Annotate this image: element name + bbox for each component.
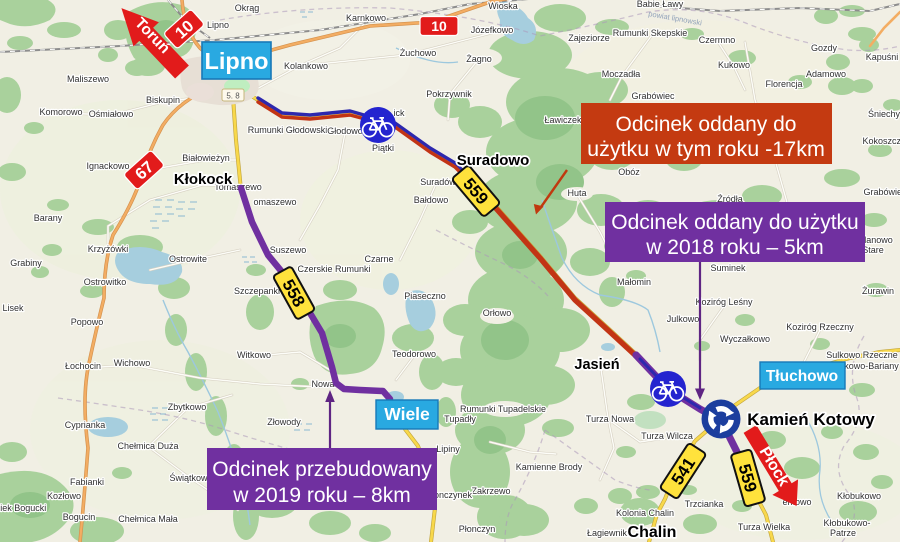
svg-text:w 2019 roku – 8km: w 2019 roku – 8km [232, 484, 410, 507]
svg-text:Łagiewniki: Łagiewniki [587, 528, 629, 538]
svg-text:Teodorowo: Teodorowo [392, 349, 436, 359]
svg-text:Kłokock: Kłokock [174, 171, 233, 188]
svg-text:Krzyżówki: Krzyżówki [88, 244, 129, 254]
svg-text:Chalin: Chalin [628, 524, 677, 541]
svg-text:Ośmiałowo: Ośmiałowo [89, 109, 134, 119]
svg-text:10: 10 [431, 18, 447, 34]
svg-text:Lipiny: Lipiny [436, 444, 460, 454]
svg-text:Suradów: Suradów [420, 177, 456, 187]
svg-text:Płonczyn: Płonczyn [459, 524, 496, 534]
svg-text:Ostrowitko: Ostrowitko [84, 277, 127, 287]
svg-text:Kozłowo: Kozłowo [47, 491, 81, 501]
svg-text:Szczepanki: Szczepanki [234, 286, 280, 296]
svg-text:Odcinek oddany do: Odcinek oddany do [616, 113, 797, 136]
svg-text:Józefkowo: Józefkowo [471, 25, 514, 35]
svg-text:użytku w tym roku -17km: użytku w tym roku -17km [587, 137, 825, 161]
svg-text:Jasień: Jasień [574, 357, 619, 373]
svg-text:Czarne: Czarne [364, 254, 393, 264]
svg-text:Kamień Kotowy: Kamień Kotowy [747, 410, 875, 429]
svg-text:Orłowo: Orłowo [483, 308, 512, 318]
svg-text:Bogucin: Bogucin [63, 512, 96, 522]
svg-text:Huta: Huta [567, 188, 586, 198]
svg-text:Piątki: Piątki [372, 143, 394, 153]
svg-text:Grabówiec: Grabówiec [631, 91, 675, 101]
svg-text:Kukowo: Kukowo [718, 60, 750, 70]
svg-text:Komorowo: Komorowo [39, 107, 82, 117]
svg-text:Chełmica Duża: Chełmica Duża [117, 441, 178, 451]
svg-text:Sulkowo Rzeczne: Sulkowo Rzeczne [826, 350, 898, 360]
svg-text:Złowody: Złowody [267, 417, 301, 427]
svg-text:Zbytkowo: Zbytkowo [168, 402, 207, 412]
svg-text:Obóz: Obóz [618, 167, 640, 177]
svg-text:Grabówiec: Grabówiec [863, 187, 900, 197]
svg-text:Biskupin: Biskupin [146, 95, 180, 105]
svg-text:Kapuśni: Kapuśni [866, 52, 899, 62]
svg-text:Żurawin: Żurawin [862, 286, 894, 296]
svg-text:ick: ick [394, 108, 405, 118]
svg-text:Rumunki Skepskie: Rumunki Skepskie [613, 28, 688, 38]
svg-text:Lisek: Lisek [2, 303, 24, 313]
svg-text:Czerskie Rumunki: Czerskie Rumunki [297, 264, 370, 274]
svg-text:Moczadła: Moczadła [602, 69, 641, 79]
svg-text:Białowieżyn: Białowieżyn [182, 153, 230, 163]
svg-text:Kolankowo: Kolankowo [284, 61, 328, 71]
svg-text:w 2018 roku – 5km: w 2018 roku – 5km [645, 236, 823, 259]
svg-text:Grabiny: Grabiny [10, 258, 42, 268]
svg-text:onczynek: onczynek [434, 490, 473, 500]
svg-text:Odcinek przebudowany: Odcinek przebudowany [212, 458, 432, 481]
svg-text:Witkowo: Witkowo [237, 350, 271, 360]
svg-text:Śniechy: Śniechy [868, 108, 900, 119]
svg-text:Julkowo: Julkowo [667, 314, 700, 324]
svg-text:Babie Ławy: Babie Ławy [637, 0, 684, 9]
svg-text:ulkowo-Bariany: ulkowo-Bariany [837, 361, 899, 371]
svg-text:Turza Nowa: Turza Nowa [586, 414, 634, 424]
svg-text:Stare: Stare [862, 245, 884, 255]
svg-text:Łochocin: Łochocin [65, 361, 101, 371]
svg-text:Patrze: Patrze [830, 528, 856, 538]
svg-text:Kłobukowo-: Kłobukowo- [823, 518, 870, 528]
svg-text:Czermno: Czermno [699, 35, 736, 45]
svg-text:Okrąg: Okrąg [235, 3, 260, 13]
svg-text:Fabianki: Fabianki [70, 477, 104, 487]
svg-text:Nowa: Nowa [311, 379, 334, 389]
svg-text:Ławiczek: Ławiczek [544, 115, 582, 125]
svg-text:Adamowo: Adamowo [806, 69, 846, 79]
svg-text:Głodowo: Głodowo [327, 126, 363, 136]
svg-text:Kłobukowo: Kłobukowo [837, 491, 881, 501]
svg-text:Florencja: Florencja [765, 79, 802, 89]
svg-text:Kolonia Chalin: Kolonia Chalin [616, 508, 674, 518]
svg-text:Koziróg Leśny: Koziróg Leśny [695, 297, 753, 307]
svg-text:Kokoszczy: Kokoszczy [862, 136, 900, 146]
svg-text:Koziróg Rzeczny: Koziróg Rzeczny [786, 322, 854, 332]
svg-text:Wichowo: Wichowo [114, 358, 151, 368]
svg-text:Turza Wilcza: Turza Wilcza [641, 431, 693, 441]
svg-text:Tłuchowo: Tłuchowo [766, 368, 838, 385]
svg-text:Suminek: Suminek [710, 263, 746, 273]
svg-text:Małomin: Małomin [617, 277, 651, 287]
svg-text:Popowo: Popowo [71, 317, 104, 327]
svg-text:Rumunki Tupadelskie: Rumunki Tupadelskie [460, 404, 546, 414]
svg-text:siek Bogucki: siek Bogucki [0, 503, 46, 513]
svg-text:Piaseczno: Piaseczno [404, 291, 446, 301]
svg-text:Odcinek oddany do użytku: Odcinek oddany do użytku [611, 211, 859, 234]
svg-text:Kamienne Brody: Kamienne Brody [516, 462, 583, 472]
svg-text:Zakrzewo: Zakrzewo [471, 486, 510, 496]
svg-text:Turza Wielka: Turza Wielka [738, 522, 790, 532]
svg-text:Maliszewo: Maliszewo [67, 74, 109, 84]
svg-text:Świątkowo: Świątkowo [169, 472, 212, 483]
svg-text:Chełmica Mała: Chełmica Mała [118, 514, 178, 524]
svg-text:omaszewo: omaszewo [253, 197, 296, 207]
svg-text:Bałdowo: Bałdowo [414, 195, 449, 205]
svg-text:Wioska: Wioska [488, 1, 518, 11]
svg-text:Cyprianka: Cyprianka [65, 420, 106, 430]
svg-text:Wyczałkowo: Wyczałkowo [720, 334, 770, 344]
svg-text:Rumunki Głodowskie: Rumunki Głodowskie [248, 125, 333, 135]
svg-text:Gozdy: Gozdy [811, 43, 838, 53]
svg-text:Ostrowite: Ostrowite [169, 254, 207, 264]
svg-text:Barany: Barany [34, 213, 63, 223]
svg-text:Suszewo: Suszewo [270, 245, 307, 255]
svg-text:Żuchowo: Żuchowo [400, 48, 437, 58]
svg-text:Karnkowo: Karnkowo [346, 13, 386, 23]
svg-text:Pokrzywnik: Pokrzywnik [426, 89, 472, 99]
svg-text:Lipno: Lipno [207, 20, 229, 30]
svg-text:Lipno: Lipno [205, 48, 269, 74]
svg-text:Wiele: Wiele [384, 404, 430, 424]
svg-text:5. 8: 5. 8 [226, 92, 240, 101]
svg-text:Ignackowo: Ignackowo [86, 161, 129, 171]
svg-text:Trzcianka: Trzcianka [685, 499, 724, 509]
svg-text:Zajeziorze: Zajeziorze [568, 33, 610, 43]
svg-text:Tupadły: Tupadły [444, 414, 476, 424]
svg-text:Żagno: Żagno [466, 54, 492, 64]
svg-text:Suradowo: Suradowo [457, 152, 530, 169]
